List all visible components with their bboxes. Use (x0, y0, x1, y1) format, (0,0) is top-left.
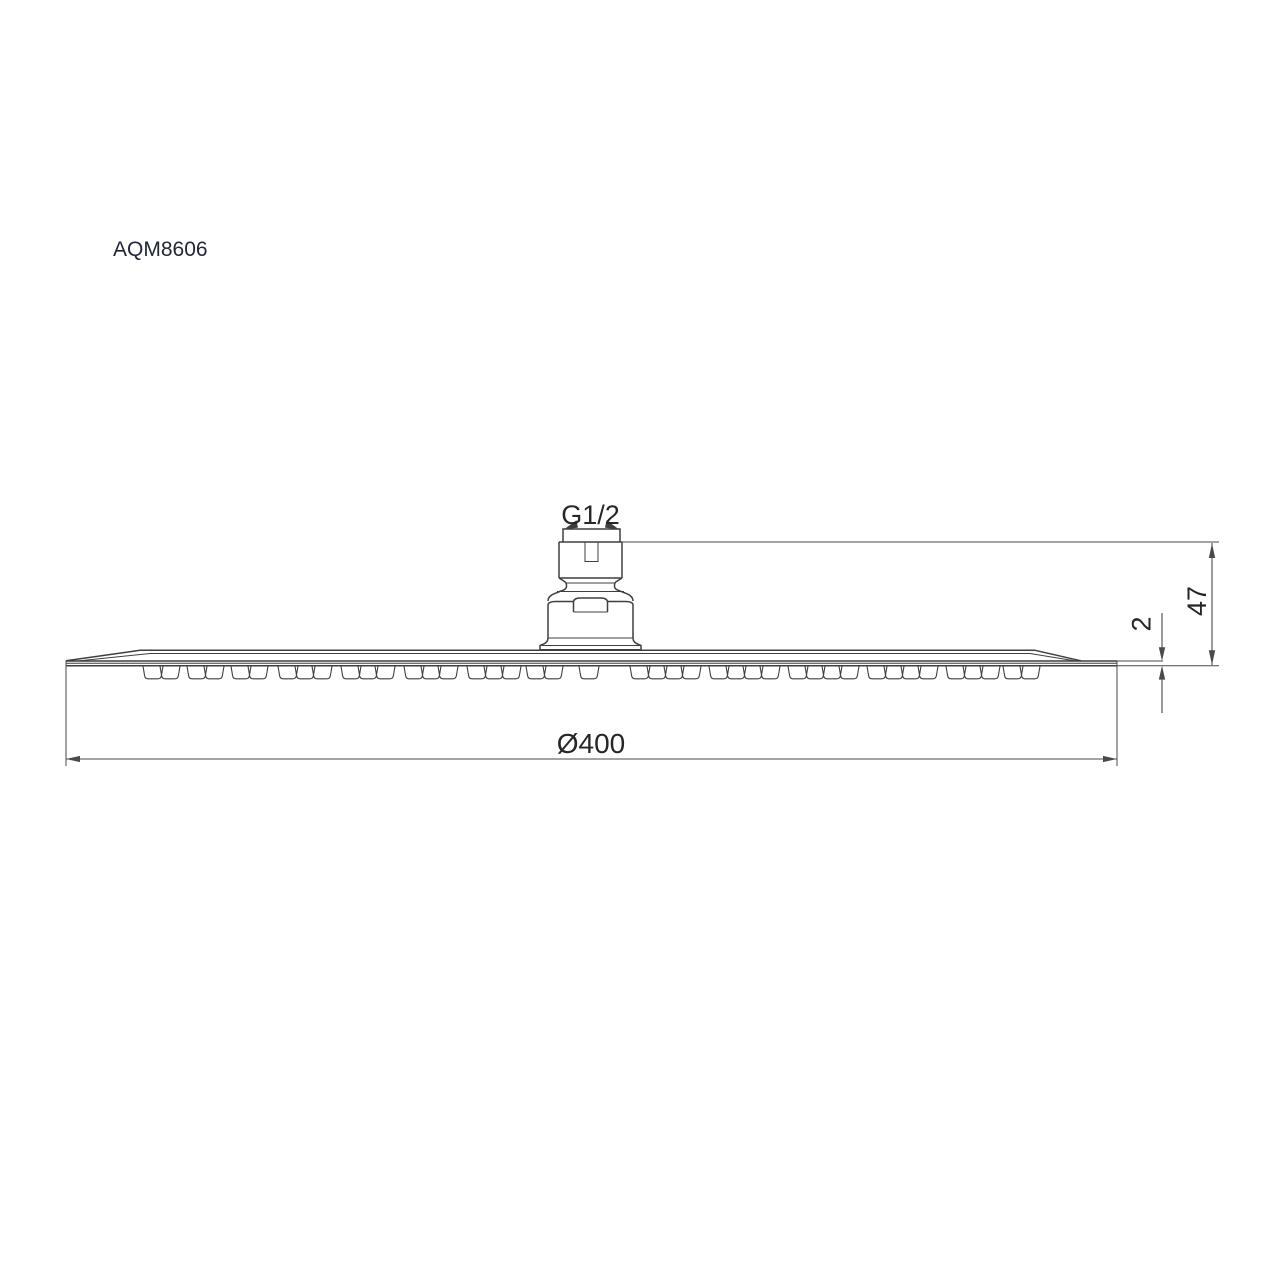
base-shoulder-left (548, 602, 574, 639)
connector-neck-right (615, 578, 634, 601)
base-skirt-left (540, 638, 548, 650)
thread-rim-outline (563, 529, 620, 542)
model-number-label: AQM8606 (113, 238, 208, 261)
arrowhead-2-up (1159, 666, 1165, 680)
arrowhead-47-down (1209, 650, 1215, 665)
connector-neck-left (548, 578, 567, 601)
nozzle-outline (579, 666, 599, 679)
thread-size-label: G1/2 (561, 500, 620, 530)
dimension-annotations: 47 2 Ø400 G1/2 (66, 500, 1219, 766)
diameter-dimension-label: Ø400 (557, 728, 626, 759)
thread-inner-slot (585, 542, 598, 562)
thickness-dimension-label: 2 (1127, 616, 1157, 631)
shower-head-technical-drawing: 47 2 Ø400 G1/2 AQM8606 (0, 0, 1280, 1280)
showerhead-side-view (66, 529, 1117, 679)
arrowhead-diameter-right (1103, 756, 1117, 762)
arrowhead-2-down (1159, 647, 1165, 661)
arrowhead-diameter-left (66, 756, 80, 762)
spray-nozzles (143, 666, 1040, 679)
drawing-page: 47 2 Ø400 G1/2 AQM8606 (0, 0, 1280, 1280)
thread-body-outline (559, 542, 622, 578)
base-skirt-right (633, 638, 641, 650)
height-dimension-label: 47 (1182, 586, 1212, 616)
base-center-bump (574, 598, 608, 612)
base-flange-lines (540, 646, 641, 650)
arrowhead-47-up (1209, 544, 1215, 559)
base-shoulder-right (608, 602, 634, 639)
